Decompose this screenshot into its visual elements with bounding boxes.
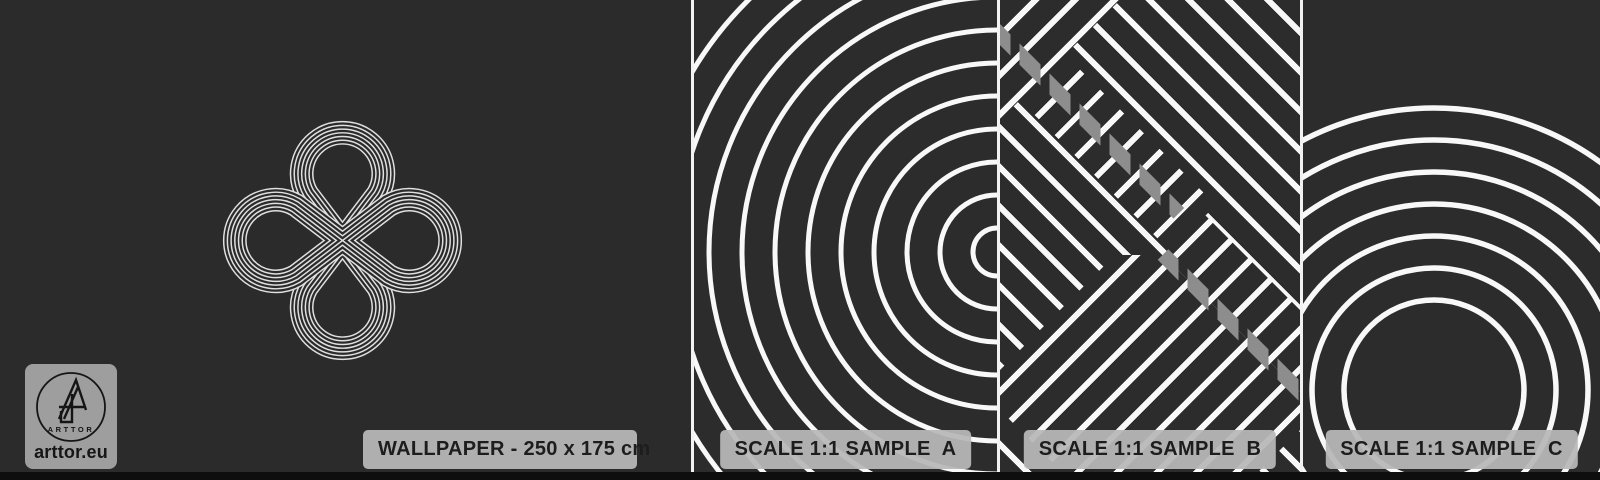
brand-logo-mark: ARTTOR xyxy=(25,364,117,446)
panel-divider xyxy=(1300,0,1303,480)
bottom-black-strip xyxy=(0,472,1600,480)
panel-divider xyxy=(691,0,694,480)
sample-c-label: SCALE 1:1 SAMPLE C xyxy=(1325,430,1577,469)
sample-b-label: SCALE 1:1 SAMPLE B xyxy=(1024,430,1276,469)
sample-a-panel: SCALE 1:1 SAMPLE A xyxy=(694,0,997,480)
logo-monogram-a xyxy=(59,380,86,422)
wallpaper-size-label: WALLPAPER - 250 x 175 cm xyxy=(363,430,637,469)
sample-a-label: SCALE 1:1 SAMPLE A xyxy=(720,430,972,469)
product-preview-image: ARTTOR arttor.eu WALLPAPER - 250 x 175 c… xyxy=(0,0,1600,480)
concentric-rings-pattern-c xyxy=(1303,0,1600,480)
sample-b-panel: SCALE 1:1 SAMPLE B xyxy=(1000,0,1300,480)
wallpaper-overview-panel: ARTTOR arttor.eu WALLPAPER - 250 x 175 c… xyxy=(0,0,691,480)
sample-c-panel: SCALE 1:1 SAMPLE C xyxy=(1303,0,1600,480)
endless-knot-motif xyxy=(220,118,465,363)
panel-divider xyxy=(997,0,1000,480)
logo-wordmark: ARTTOR xyxy=(48,425,95,434)
concentric-rings-pattern-a xyxy=(694,0,997,480)
brand-logo-badge: ARTTOR arttor.eu xyxy=(25,364,117,469)
brand-domain-text: arttor.eu xyxy=(25,442,117,463)
